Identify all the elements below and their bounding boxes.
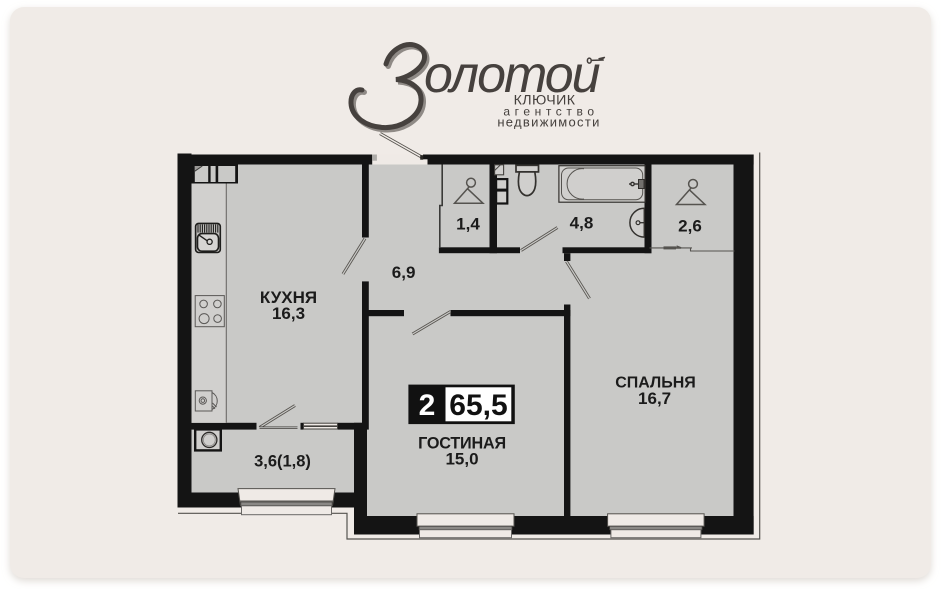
svg-text:3,6(1,8): 3,6(1,8) — [254, 453, 311, 471]
svg-text:16,7: 16,7 — [638, 389, 671, 408]
svg-text:65,5: 65,5 — [449, 389, 507, 422]
svg-text:2: 2 — [419, 389, 436, 422]
svg-text:недвижимости: недвижимости — [497, 114, 600, 129]
svg-text:4,8: 4,8 — [570, 214, 594, 233]
svg-text:2,6: 2,6 — [678, 217, 702, 236]
svg-text:15,0: 15,0 — [445, 449, 478, 468]
svg-text:1,4: 1,4 — [456, 214, 480, 233]
svg-text:6,9: 6,9 — [392, 263, 416, 282]
svg-text:16,3: 16,3 — [272, 304, 305, 323]
